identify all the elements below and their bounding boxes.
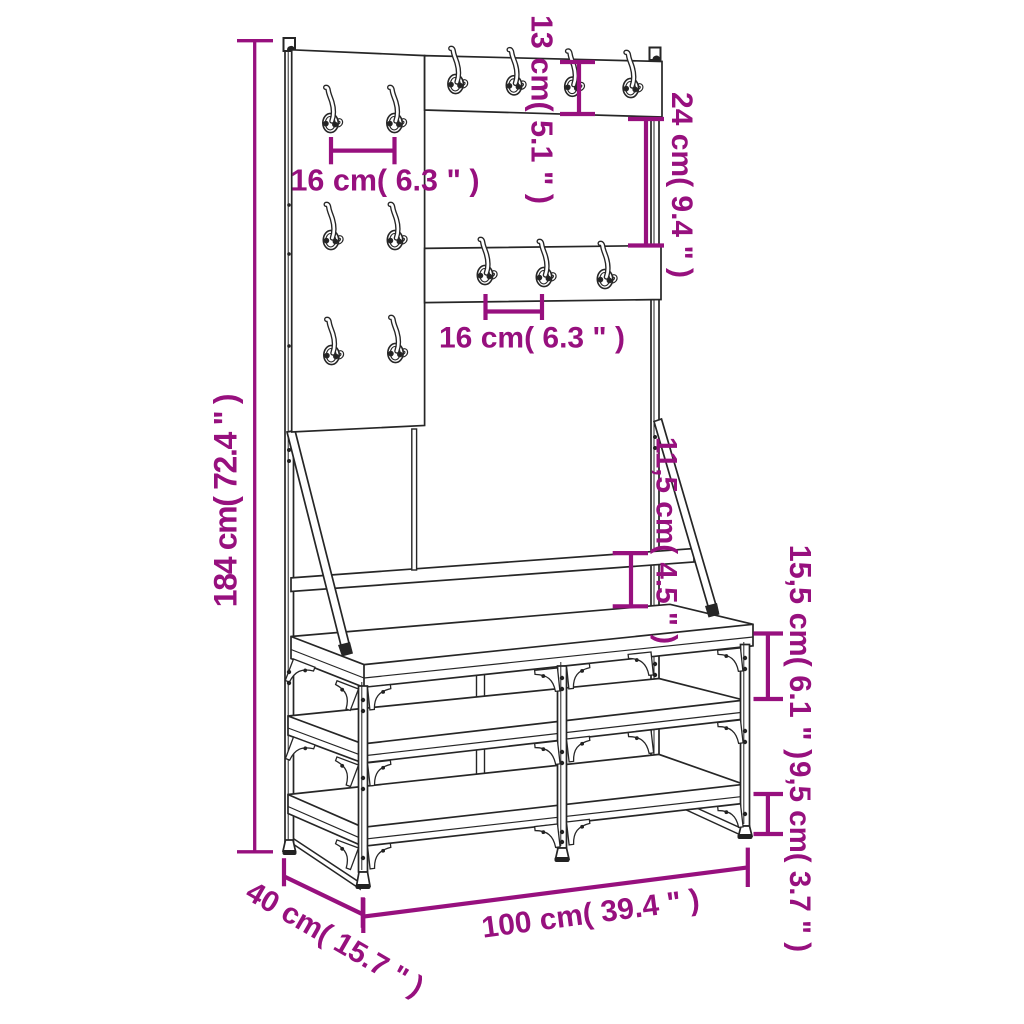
- svg-text:13 cm( 5.1 " ): 13 cm( 5.1 " ): [525, 15, 559, 204]
- svg-text:184 cm( 72.4 " ): 184 cm( 72.4 " ): [208, 394, 244, 607]
- svg-text:16 cm( 6.3 " ): 16 cm( 6.3 " ): [439, 322, 625, 355]
- svg-text:24 cm( 9.4 " ): 24 cm( 9.4 " ): [665, 92, 698, 278]
- svg-text:16 cm( 6.3 " ): 16 cm( 6.3 " ): [290, 164, 479, 198]
- svg-text:15,5 cm( 6.1 " ): 15,5 cm( 6.1 " ): [783, 545, 817, 760]
- svg-text:9,5 cm( 3.7 " ): 9,5 cm( 3.7 " ): [783, 761, 816, 952]
- svg-text:11,5 cm( 4.5 " ): 11,5 cm( 4.5 " ): [650, 437, 683, 644]
